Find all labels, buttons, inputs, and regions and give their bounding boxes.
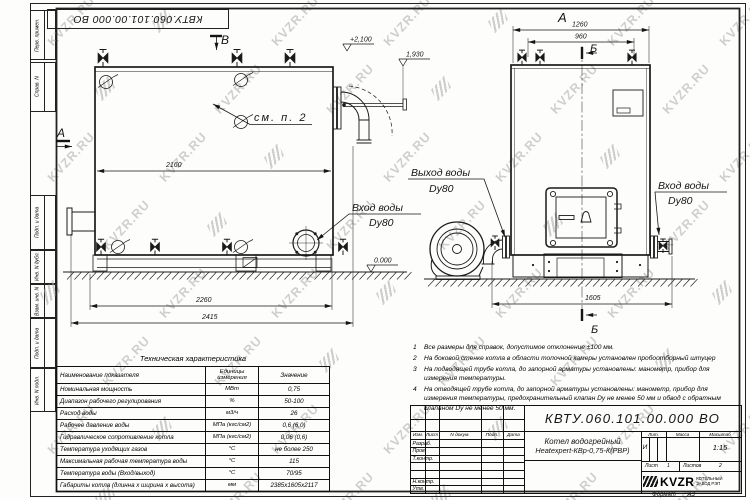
- view-a-title: А: [557, 10, 567, 25]
- position-mark-icon: [98, 75, 118, 89]
- valve-icon: [339, 239, 348, 255]
- spec-cell: Рабочее давление воды: [57, 420, 206, 431]
- position-mark-icon: [233, 73, 253, 87]
- elevation-mark: +2,100: [343, 37, 374, 52]
- tb-scale-value: 1:15: [699, 443, 741, 452]
- valve-icon: [285, 50, 295, 68]
- outlet-label-2: Dy80: [429, 183, 454, 195]
- tb-col-list: Лист: [425, 433, 439, 438]
- furnace-door: [546, 188, 621, 247]
- section-b-bottom-label: Б: [591, 324, 598, 336]
- format-value: А3: [688, 492, 695, 498]
- product-title-line2: Heatexpert-КВр-0,75-К(РВР): [535, 446, 629, 455]
- spec-header-units: Единицы измерения: [206, 367, 259, 383]
- spec-table-row: Диапазон рабочего регулирования%50-100: [57, 395, 329, 407]
- format-note: Формат А3: [652, 492, 742, 498]
- note-number: 3: [413, 365, 424, 384]
- note-text: На подводящей трубе котла, до запорной а…: [424, 365, 742, 384]
- inlet-label-front-2: Dy80: [668, 195, 693, 207]
- section-view-marks: [56, 35, 597, 321]
- spec-cell: °С: [206, 456, 259, 467]
- notes-list: 1Все размеры для справок, допустимое отк…: [413, 343, 742, 415]
- spec-cell: Максимальная рабочая температура воды: [57, 456, 206, 467]
- tb-sheets-label: Листов: [683, 463, 701, 469]
- note-number: 2: [413, 354, 424, 363]
- spec-cell: Температура уходящих газов: [57, 444, 206, 455]
- tb-lit-label: Лит.: [641, 432, 666, 437]
- corner-doc-number-box: КВТУ.060.101.00.000 ВО: [47, 9, 229, 29]
- valve-icon: [628, 50, 637, 65]
- dimension: 960: [528, 34, 634, 43]
- valve-icon: [518, 50, 527, 65]
- corner-doc-number: КВТУ.060.101.00.000 ВО: [73, 13, 203, 25]
- tb-col-izm: Изм.: [411, 433, 425, 438]
- spec-cell: МПа (кгс/см2): [206, 420, 259, 431]
- spec-cell: Расход воды: [57, 408, 206, 419]
- tb-sheet-value: 1: [667, 463, 670, 469]
- note-ref-label: см. п. 2: [254, 112, 307, 124]
- spec-cell: °С: [206, 444, 259, 455]
- spec-cell: мм: [206, 480, 259, 491]
- spec-table-title: Техническая характеристика: [56, 352, 330, 366]
- spec-table-row: Гидравлическое сопротивление котлаМПа (к…: [57, 431, 329, 443]
- product-title-line1: Котел водогрейный: [544, 437, 620, 446]
- section-a-label: А: [56, 126, 65, 140]
- company-sub2: ЗАВОД РЭП: [696, 482, 722, 487]
- dimension-label: 2415: [201, 314, 218, 321]
- spec-table-row: Максимальная рабочая температура воды°С1…: [57, 455, 329, 467]
- kvzr-logo-icon: [643, 476, 658, 487]
- note-item: 1Все размеры для справок, допустимое отк…: [413, 343, 742, 352]
- note-item: 3На подводящей трубе котла, до запорной …: [413, 365, 742, 384]
- tb-sheet-label: Лист: [645, 463, 658, 469]
- tb-lit-value: И: [641, 444, 649, 451]
- spec-header-value: Значение: [259, 367, 329, 383]
- format-label: Формат: [652, 492, 676, 498]
- valve-icon: [232, 50, 242, 68]
- spec-cell: 26: [259, 408, 329, 419]
- doc-number: КВТУ.060.101.00.000 ВО: [545, 411, 720, 426]
- tb-col-data: Дата: [503, 433, 524, 438]
- tb-sheets-value: 2: [719, 463, 722, 469]
- spec-cell: Диапазон рабочего регулирования: [57, 396, 206, 407]
- spec-cell: Температура воды (Вход/выход): [57, 468, 206, 479]
- spec-cell: м3/ч: [206, 408, 259, 419]
- elevation-mark: 1,930: [399, 52, 430, 67]
- inlet-label-side-2: Dy80: [369, 217, 394, 229]
- tb-col-ndocum: N докум.: [439, 433, 481, 438]
- spec-table-row: Температура уходящих газов°Сне более 250: [57, 443, 329, 455]
- outlet-label-1: Выход воды: [411, 167, 470, 179]
- note-number: 1: [413, 343, 424, 352]
- spec-table-row: Номинальная мощностьМВт0,75: [57, 383, 329, 395]
- dimension-label: 1605: [585, 295, 601, 302]
- note-text: Все размеры для справок, допустимое откл…: [424, 343, 614, 352]
- valve-icon: [536, 50, 545, 65]
- note-text: На боковой стенке котла в области топочн…: [424, 354, 716, 363]
- inlet-label-side-1: Вход воды: [352, 202, 403, 214]
- dimension: 2160: [97, 162, 331, 171]
- control-panel: [613, 90, 643, 116]
- spec-cell: Гидравлическое сопротивление котла: [57, 432, 206, 443]
- blower-fan: [430, 222, 484, 280]
- valve-icon: [97, 239, 106, 255]
- tb-scale-label: Масштаб: [699, 432, 741, 437]
- spec-cell: МВт: [206, 384, 259, 395]
- valve-icon: [491, 236, 499, 250]
- tb-row-nkontr: Н.контр.: [413, 479, 435, 485]
- elevation-label: 0.000: [374, 258, 392, 265]
- note-item: 2На боковой стенке котла в области топоч…: [413, 354, 742, 363]
- position-mark-icon: [233, 240, 253, 254]
- dimension: 1260: [513, 22, 649, 31]
- view-b-label: В: [221, 33, 229, 47]
- tb-row-tkontr: Т.контр.: [413, 456, 434, 462]
- spec-table-row: Рабочее давление водыМПа (кгс/см2)0,6 (6…: [57, 419, 329, 431]
- dimension-label: 2160: [165, 162, 182, 169]
- spec-table-row: Температура воды (Вход/выход)°С70/95: [57, 467, 329, 479]
- spec-table-row: Расход водым3/ч26: [57, 407, 329, 419]
- spec-table: Техническая характеристика Наименование …: [56, 352, 330, 492]
- title-block: Изм. Лист N докум. Подп. Дата Разраб. Пр…: [410, 405, 742, 494]
- spec-cell: 0,75: [259, 384, 329, 395]
- dimension-label: 2260: [195, 297, 212, 304]
- tb-col-podp: Подп.: [481, 433, 503, 438]
- position-mark-icon: [110, 240, 130, 254]
- spec-cell: МПа (кгс/см2): [206, 432, 259, 443]
- dimension: 2415: [71, 314, 353, 323]
- drawing-sheet: KVZR.RUKVZR.RUKVZR.RUKVZR.RUKVZR.RUKVZR.…: [0, 0, 750, 500]
- spec-cell: 50-100: [259, 396, 329, 407]
- spec-cell: Габариты котла (длинна х ширина х высота…: [57, 480, 206, 491]
- company-logo: KVZR КОТЕЛЬНЫЙ ЗАВОД РЭП: [643, 472, 739, 491]
- valve-icon: [223, 239, 232, 255]
- spec-cell: 70/95: [259, 468, 329, 479]
- section-b-top-label: Б: [590, 43, 597, 55]
- tb-row-utv: Утв.: [413, 486, 425, 492]
- dimension: 2260: [90, 297, 332, 306]
- inlet-label-front-1: Вход воды: [658, 180, 709, 192]
- tb-row-prov: Пров.: [413, 448, 427, 454]
- spec-cell: %: [206, 396, 259, 407]
- spec-table-row: Габариты котла (длинна х ширина х высота…: [57, 479, 329, 491]
- spec-cell: Номинальная мощность: [57, 384, 206, 395]
- valve-icon: [151, 239, 160, 255]
- spec-cell: не более 250: [259, 444, 329, 455]
- tb-row-razrab: Разраб.: [413, 441, 432, 447]
- dimension-label: 960: [575, 34, 587, 41]
- spec-cell: 2385х1605х2117: [259, 480, 329, 491]
- tb-mass-label: Масса: [666, 432, 699, 437]
- elevation-label: 1,930: [406, 52, 424, 59]
- company-name: KVZR: [660, 475, 694, 489]
- spec-cell: 115: [259, 456, 329, 467]
- dimension-label: 1260: [572, 22, 588, 29]
- spec-cell: 0,6 (6,0): [259, 420, 329, 431]
- elevation-mark: 0.000: [367, 258, 398, 273]
- spec-header-name: Наименование показателя: [57, 367, 206, 383]
- elevation-label: +2,100: [350, 37, 372, 44]
- spec-cell: 0,06 (0,6): [259, 432, 329, 443]
- valve-icon: [98, 50, 108, 68]
- spec-table-header: Наименование показателя Единицы измерени…: [57, 367, 329, 383]
- spec-cell: °С: [206, 468, 259, 479]
